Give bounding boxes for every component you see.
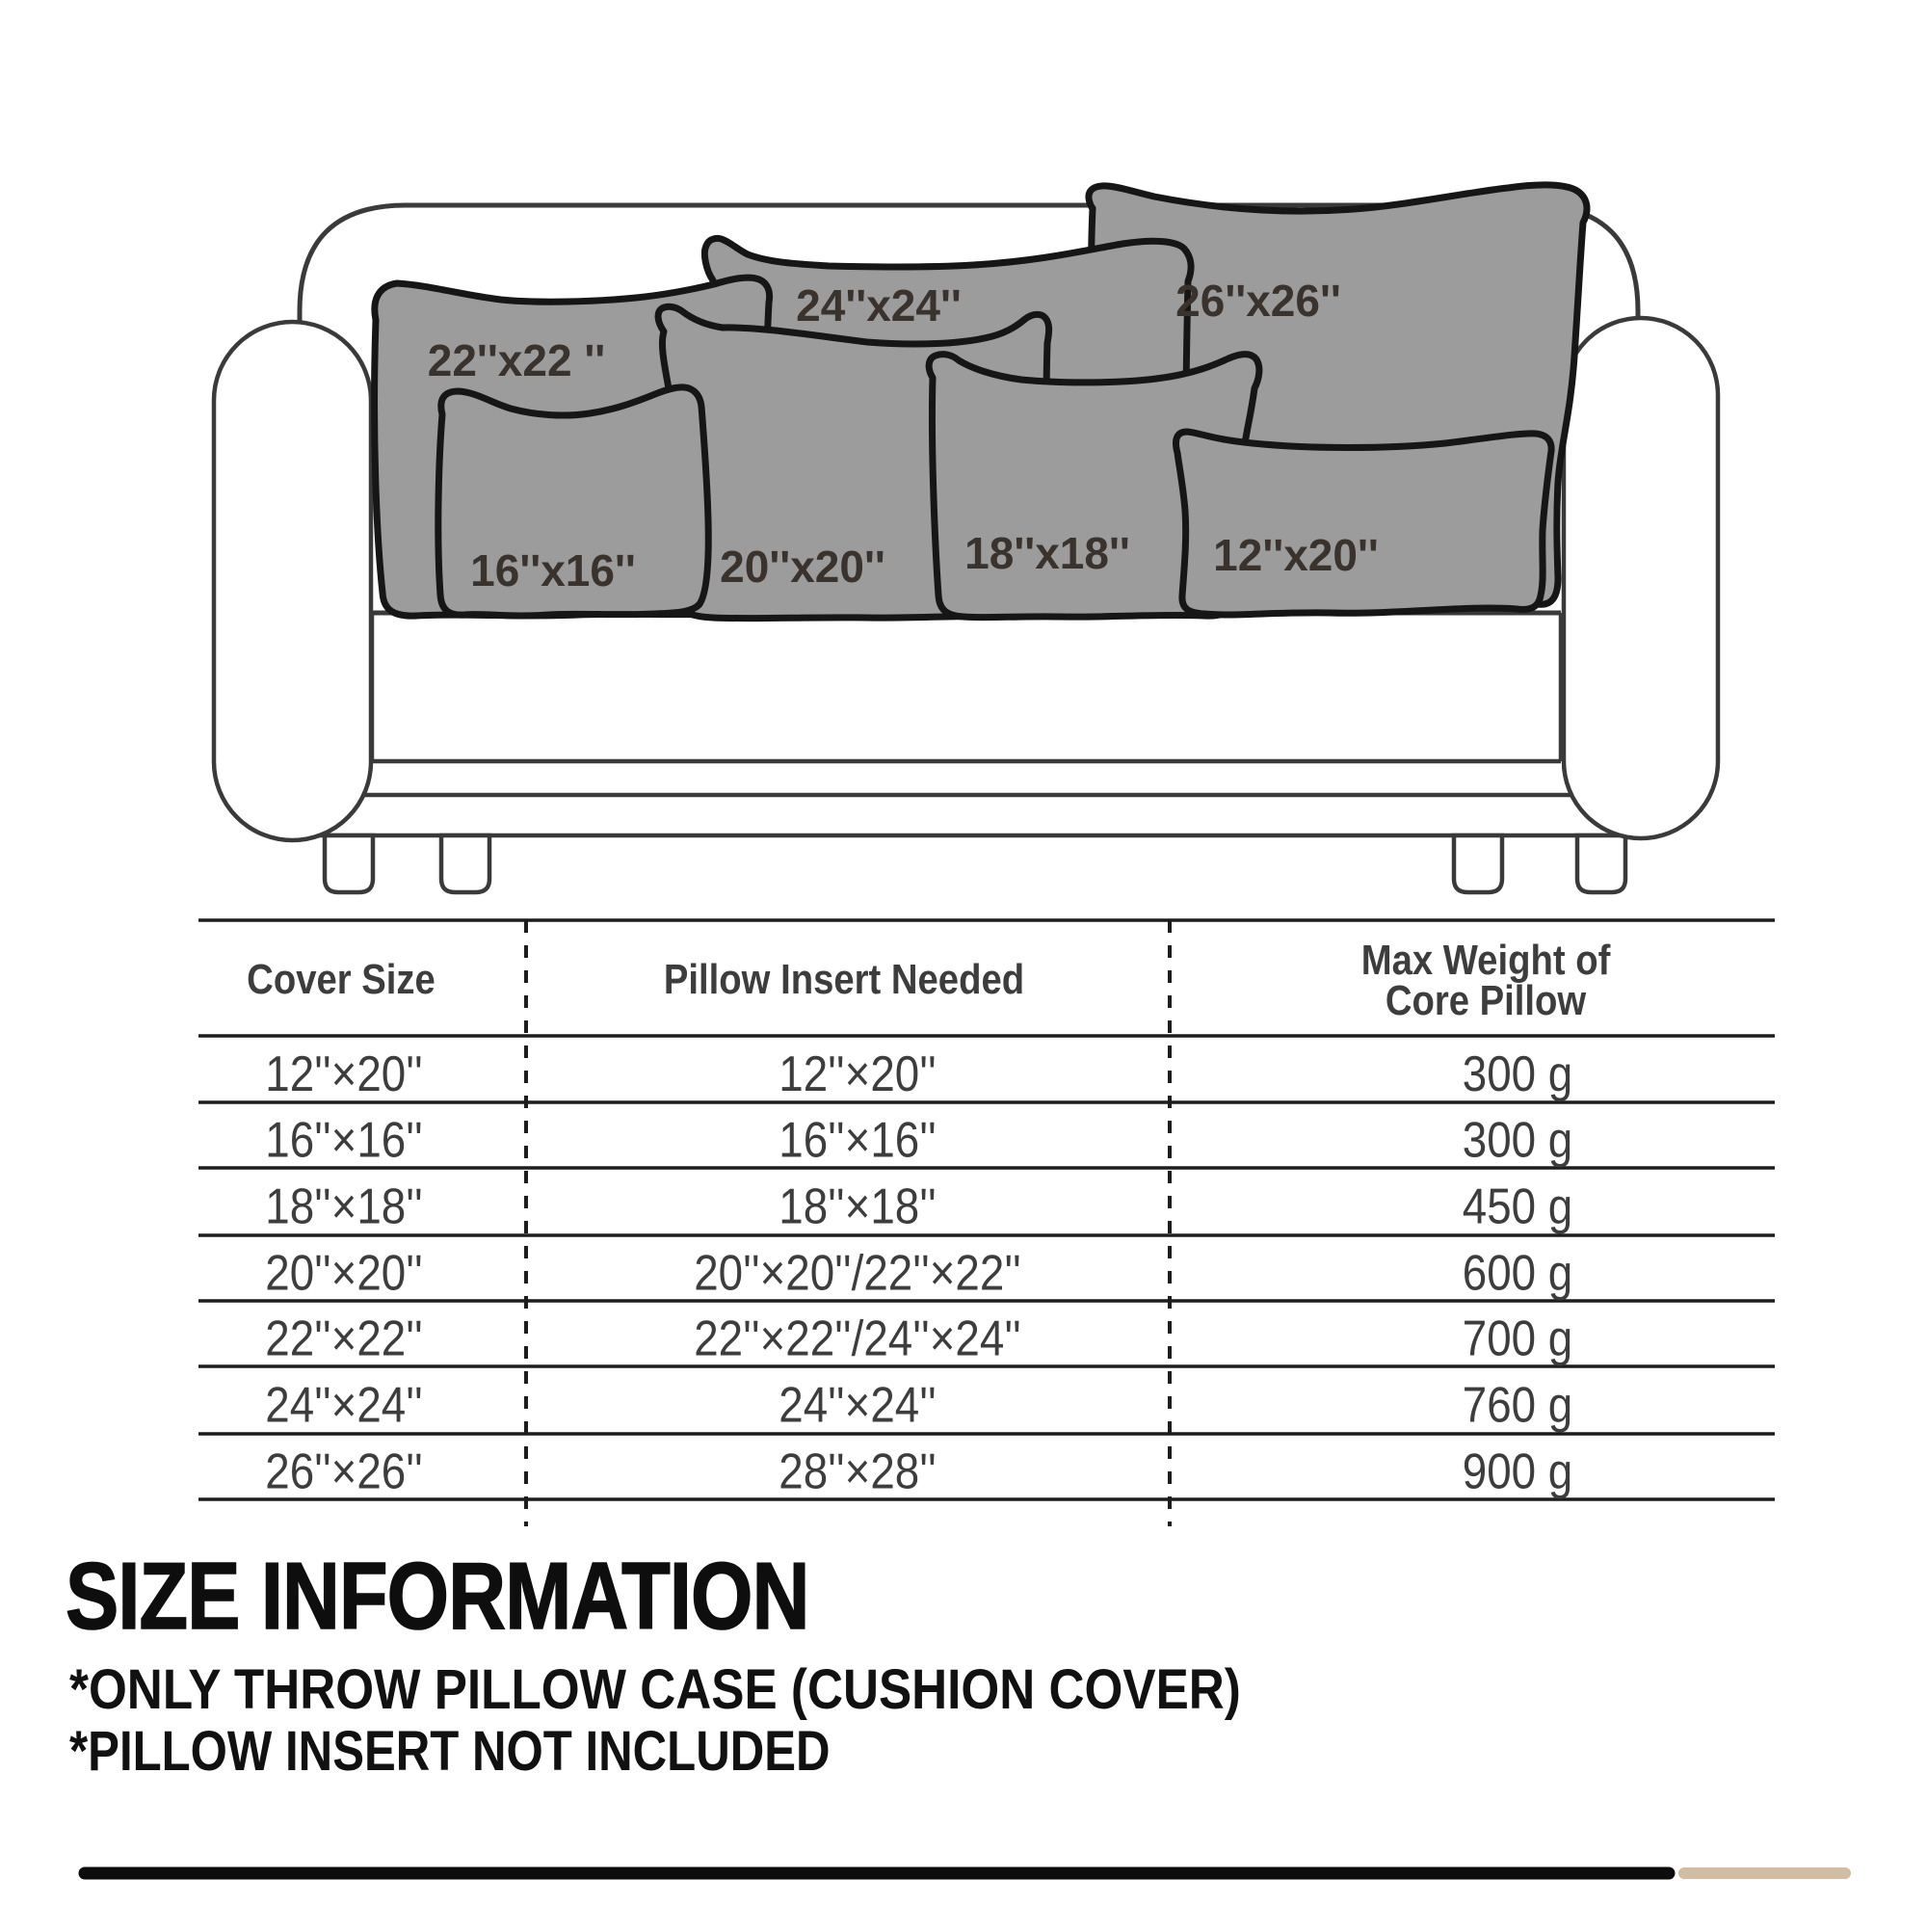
svg-text:*PILLOW INSERT NOT INCLUDED: *PILLOW INSERT NOT INCLUDED [69,1720,831,1783]
svg-text:18''×18'': 18''×18'' [779,1179,936,1234]
svg-text:22''×22''/24''×24'': 22''×22''/24''×24'' [694,1311,1021,1366]
svg-text:20''x20'': 20''x20'' [720,542,885,592]
svg-text:12''×20'': 12''×20'' [265,1046,422,1101]
svg-text:18''x18'': 18''x18'' [964,528,1130,578]
svg-text:900 g: 900 g [1463,1444,1572,1499]
svg-text:26''x26'': 26''x26'' [1175,276,1341,326]
svg-text:SIZE INFORMATION: SIZE INFORMATION [66,1545,809,1650]
svg-text:12''x20'': 12''x20'' [1213,530,1379,580]
svg-text:24''×24'': 24''×24'' [265,1378,422,1433]
svg-text:16''×16'': 16''×16'' [265,1113,422,1168]
svg-text:Cover Size: Cover Size [247,956,436,1003]
svg-text:18''×18'': 18''×18'' [265,1179,422,1234]
svg-text:Core Pillow: Core Pillow [1386,977,1587,1024]
svg-text:22''x22 '': 22''x22 '' [428,335,605,385]
svg-text:600 g: 600 g [1463,1246,1572,1301]
svg-text:450 g: 450 g [1463,1179,1572,1234]
svg-text:20''×20'': 20''×20'' [265,1246,422,1301]
svg-text:*ONLY THROW PILLOW CASE (CUSHI: *ONLY THROW PILLOW CASE (CUSHION COVER) [69,1657,1241,1721]
svg-text:16''x16'': 16''x16'' [470,545,636,595]
svg-text:Pillow Insert Needed: Pillow Insert Needed [664,956,1024,1003]
svg-text:300 g: 300 g [1463,1046,1572,1101]
svg-text:12''×20'': 12''×20'' [779,1046,936,1101]
svg-text:22''×22'': 22''×22'' [265,1311,422,1366]
svg-text:24''x24'': 24''x24'' [796,280,962,331]
svg-text:760 g: 760 g [1463,1378,1572,1433]
svg-text:20''×20''/22''×22'': 20''×20''/22''×22'' [694,1246,1021,1301]
svg-text:24''×24'': 24''×24'' [779,1378,936,1433]
svg-text:28''×28'': 28''×28'' [779,1444,936,1499]
svg-text:300 g: 300 g [1463,1113,1572,1168]
svg-text:700 g: 700 g [1463,1311,1572,1366]
svg-text:16''×16'': 16''×16'' [779,1113,936,1168]
svg-text:26''×26'': 26''×26'' [265,1444,422,1499]
